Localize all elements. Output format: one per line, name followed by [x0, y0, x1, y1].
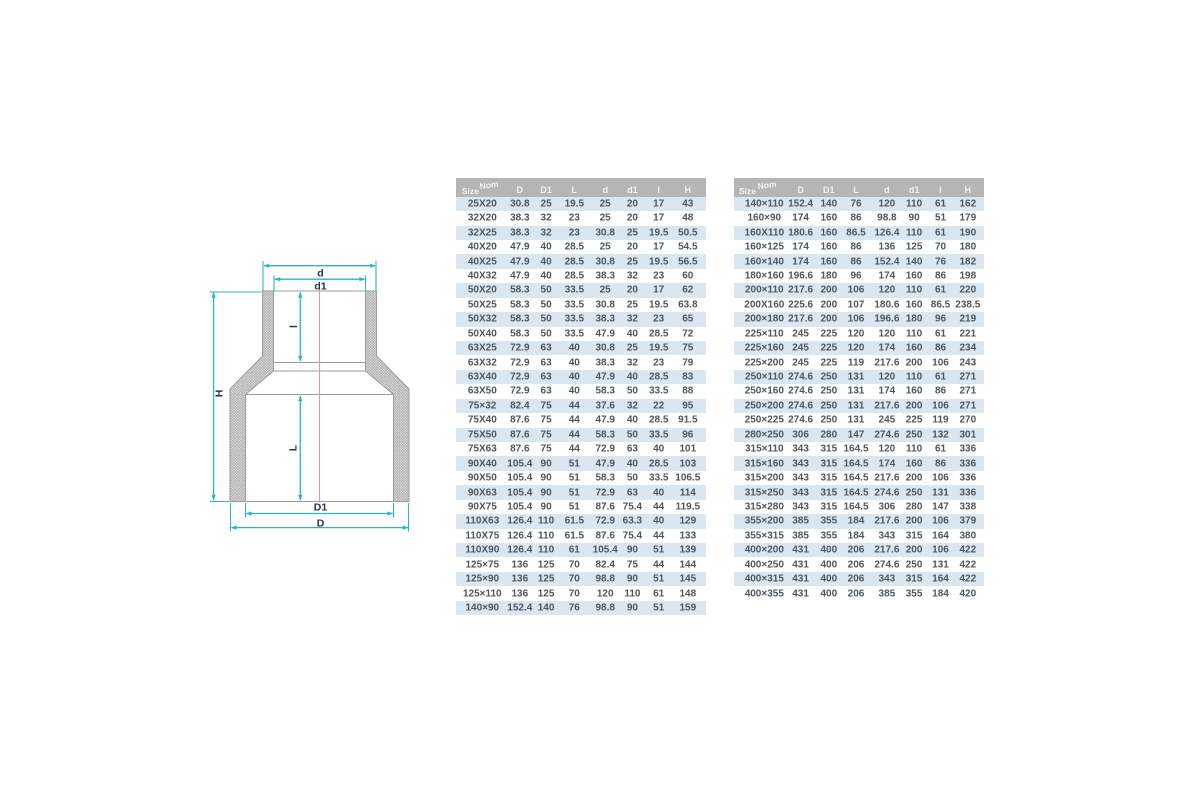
svg-text:L: L — [288, 444, 300, 451]
svg-text:D1: D1 — [314, 502, 328, 514]
svg-text:d1: d1 — [314, 281, 326, 293]
svg-text:d: d — [317, 268, 323, 280]
svg-text:D: D — [317, 518, 325, 530]
svg-text:l: l — [288, 325, 300, 328]
svg-text:H: H — [213, 390, 225, 398]
